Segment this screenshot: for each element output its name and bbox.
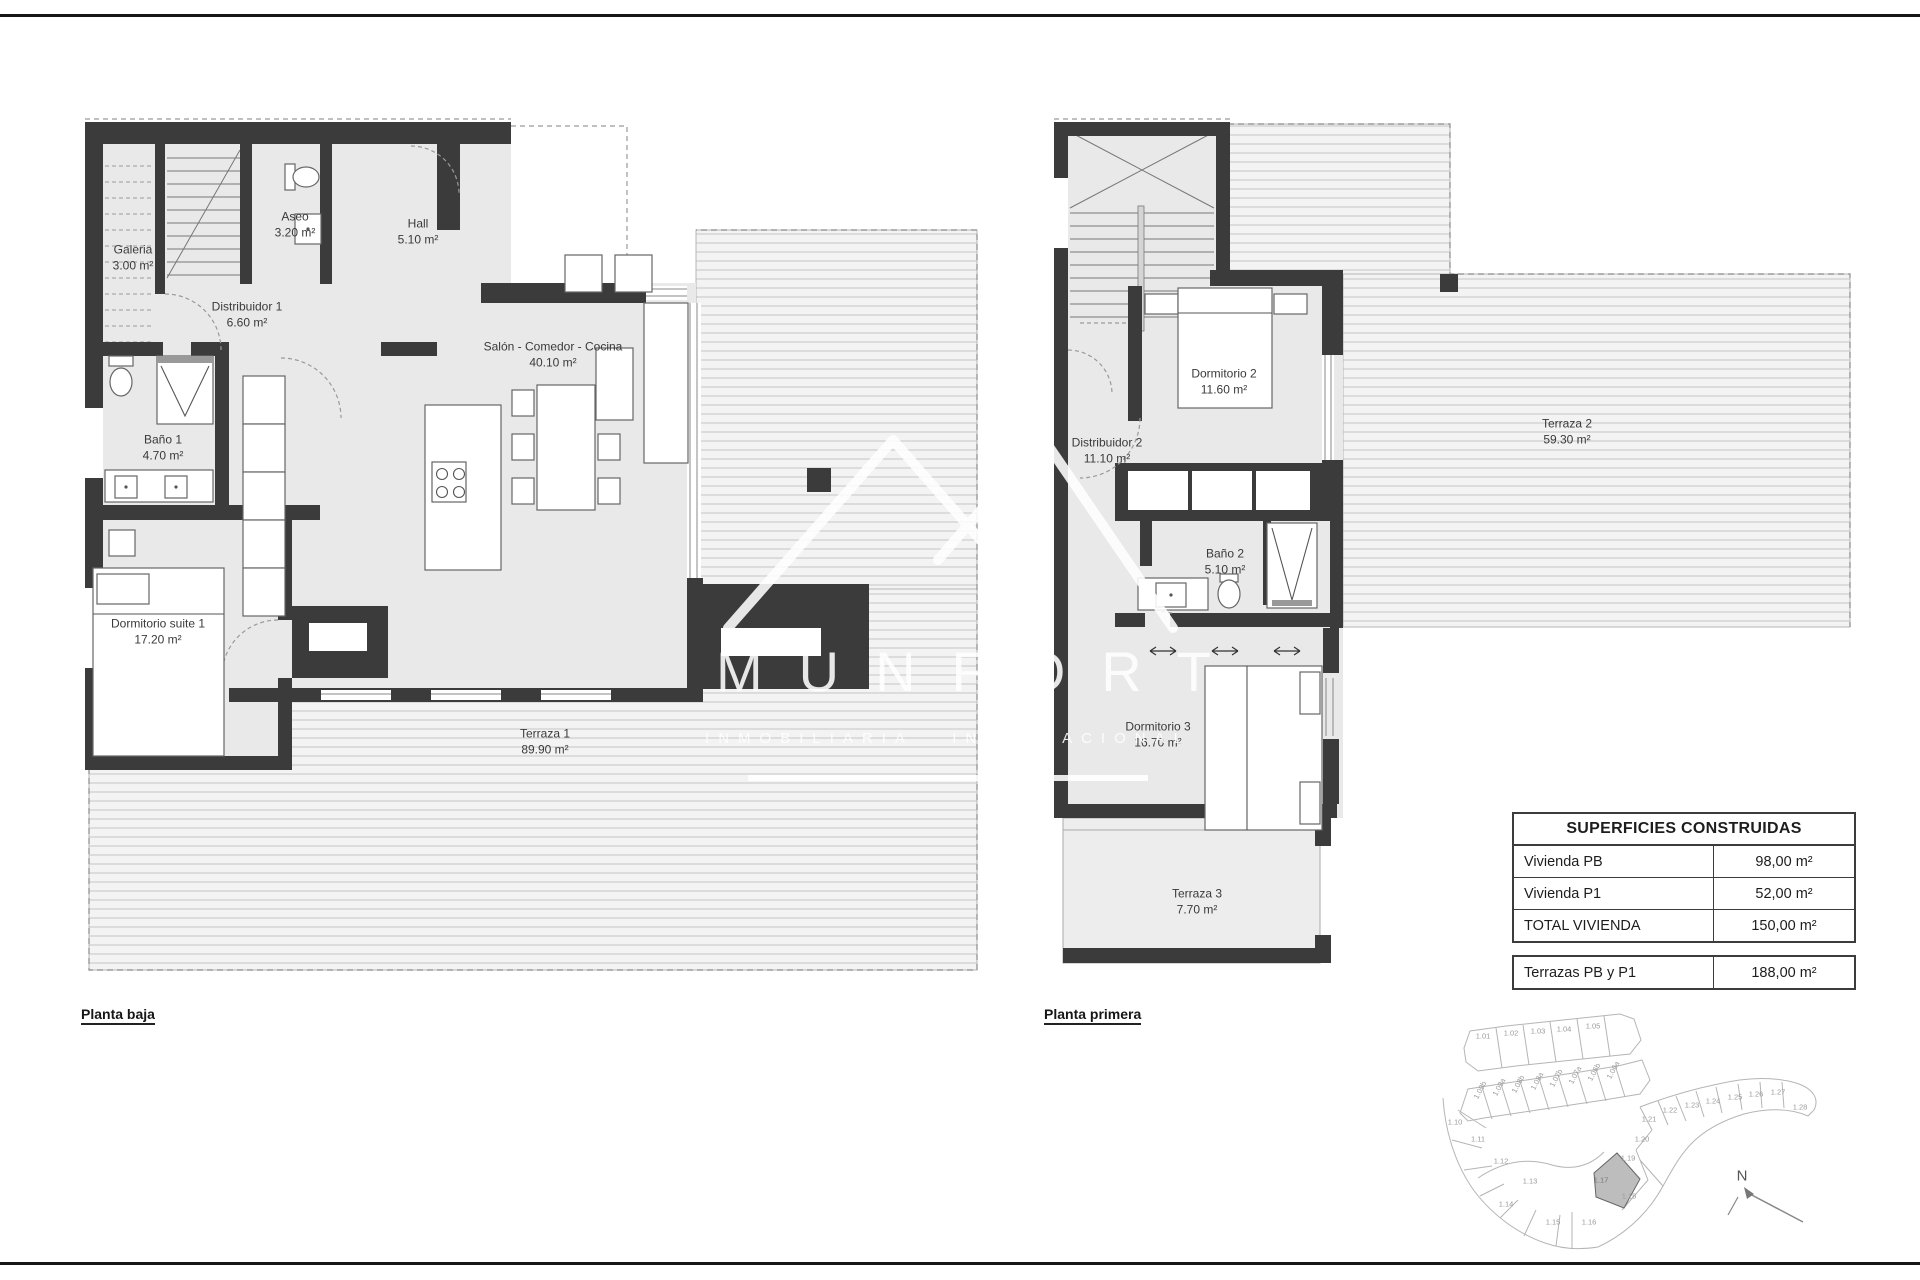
north-arrow-icon (1728, 1187, 1803, 1222)
plot-label: 1.22 (1663, 1106, 1678, 1115)
plot-label: 1.24 (1706, 1097, 1721, 1106)
plot-label-highlighted: 1.17 (1594, 1176, 1609, 1185)
row-label: Terrazas PB y P1 (1514, 957, 1713, 988)
plot-label: 1.28 (1793, 1103, 1808, 1112)
plot-label: 1.26 (1749, 1090, 1764, 1099)
row-label: Vivienda PB (1514, 846, 1713, 877)
row-value: 52,00 m² (1713, 878, 1854, 909)
room-label-bano-1: Baño 14.70 m² (143, 432, 184, 463)
plot-label: 1.11 (1471, 1135, 1485, 1144)
room-label-galeria: Galeria3.00 m² (113, 242, 154, 273)
row-label: TOTAL VIVIENDA (1514, 910, 1713, 941)
plot-label: 1.03 (1531, 1027, 1546, 1036)
plot-label: 1.16 (1582, 1218, 1597, 1227)
plot-label: 1.25 (1728, 1093, 1743, 1102)
areas-table: SUPERFICIES CONSTRUIDAS Vivienda PB 98,0… (1512, 812, 1856, 990)
plot-label: 1.10 (1448, 1118, 1463, 1127)
room-label-bano-2: Baño 25.10 m² (1205, 546, 1246, 577)
room-label-dormitorio-3: Dormitorio 316.70 m² (1125, 719, 1190, 750)
site-plan: 1.01 1.02 1.03 1.04 1.05 1.09b 1.09a 1.0… (1440, 1005, 1870, 1275)
plot-label: 1.14 (1499, 1200, 1514, 1209)
north-label: N (1737, 1168, 1748, 1185)
areas-table-footer: Terrazas PB y P1 188,00 m² (1512, 955, 1856, 990)
plot-label: 1.21 (1642, 1115, 1657, 1124)
plot-label: 1.20 (1635, 1135, 1650, 1144)
table-row: Terrazas PB y P1 188,00 m² (1514, 957, 1854, 988)
plot-label: 1.15 (1546, 1218, 1561, 1227)
plot-label: 1.01 (1476, 1032, 1491, 1041)
room-label-salon: Salón - Comedor - Cocina40.10 m² (484, 339, 623, 370)
plot-label: 1.04 (1557, 1025, 1572, 1034)
plot-label: 1.27 (1771, 1088, 1786, 1097)
planta-baja-drawing (81, 118, 981, 976)
plot-label: 1.12 (1494, 1157, 1509, 1166)
room-label-terraza-2: Terraza 259.30 m² (1542, 416, 1592, 447)
plot-label: 1.23 (1685, 1101, 1700, 1110)
plot-label: 1.19 (1621, 1154, 1636, 1163)
room-label-dormitorio-suite-1: Dormitorio suite 117.20 m² (111, 616, 205, 647)
page-top-rule (0, 14, 1920, 17)
table-row: TOTAL VIVIENDA 150,00 m² (1514, 910, 1854, 941)
site-plan-drawing (1440, 1005, 1870, 1275)
table-row: Vivienda PB 98,00 m² (1514, 846, 1854, 878)
plan-sheet: Galeria3.00 m² Aseo3.20 m² Hall5.10 m² D… (0, 0, 1920, 1280)
room-label-dormitorio-2: Dormitorio 211.60 m² (1191, 366, 1256, 397)
row-value: 98,00 m² (1713, 846, 1854, 877)
plot-label: 1.05 (1586, 1022, 1601, 1031)
room-label-hall: Hall5.10 m² (398, 216, 439, 247)
plot-label: 1.13 (1523, 1177, 1538, 1186)
row-value: 188,00 m² (1713, 957, 1854, 988)
row-value: 150,00 m² (1713, 910, 1854, 941)
room-label-terraza-3: Terraza 37.70 m² (1172, 886, 1222, 917)
row-label: Vivienda P1 (1514, 878, 1713, 909)
table-row: Vivienda P1 52,00 m² (1514, 878, 1854, 910)
room-label-distribuidor-1: Distribuidor 16.60 m² (212, 299, 283, 330)
caption-planta-primera: Planta primera (1044, 1006, 1141, 1025)
room-label-distribuidor-2: Distribuidor 211.10 m² (1072, 435, 1143, 466)
caption-planta-baja: Planta baja (81, 1006, 155, 1025)
plot-label: 1.02 (1504, 1029, 1519, 1038)
room-label-aseo: Aseo3.20 m² (275, 209, 316, 240)
plot-label: 1.18 (1622, 1192, 1637, 1201)
areas-table-main: SUPERFICIES CONSTRUIDAS Vivienda PB 98,0… (1512, 812, 1856, 943)
floor-plan-planta-baja: Galeria3.00 m² Aseo3.20 m² Hall5.10 m² D… (81, 118, 981, 976)
areas-table-title: SUPERFICIES CONSTRUIDAS (1514, 814, 1854, 846)
room-label-terraza-1: Terraza 189.90 m² (520, 726, 570, 757)
